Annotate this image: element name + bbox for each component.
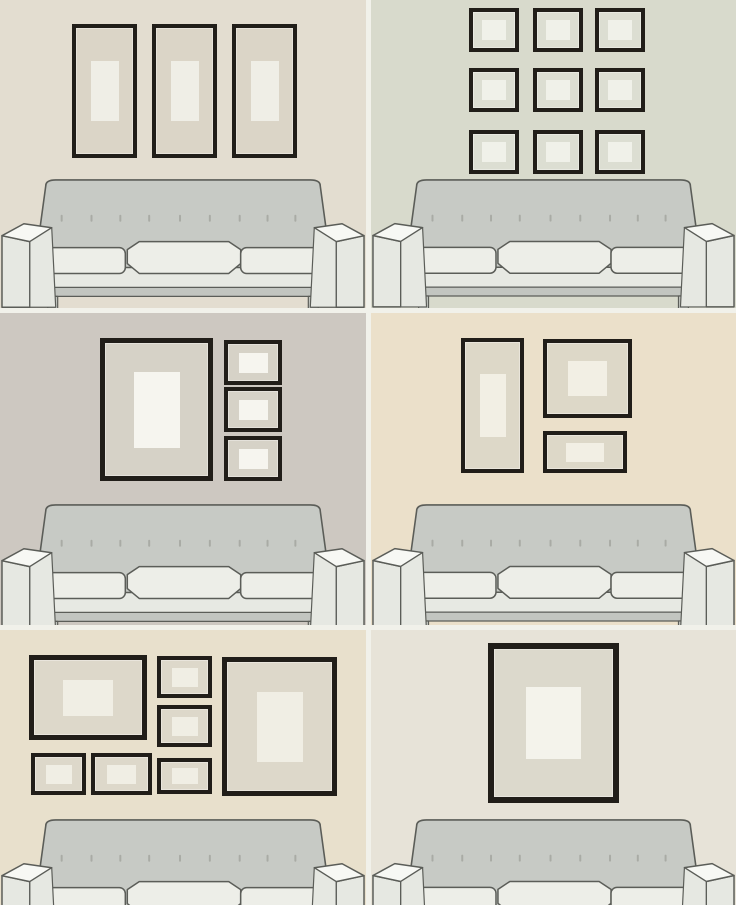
frame-picture-area bbox=[482, 80, 506, 100]
picture-frame bbox=[533, 8, 583, 52]
frame-picture-area bbox=[480, 374, 506, 437]
panel-asymmetric-trio bbox=[371, 313, 736, 625]
picture-frame bbox=[543, 339, 632, 418]
picture-frame bbox=[469, 130, 519, 174]
sofa-illustration bbox=[371, 501, 736, 625]
frame-picture-area bbox=[107, 765, 136, 784]
picture-frame bbox=[469, 8, 519, 52]
picture-frame bbox=[469, 68, 519, 112]
picture-frame bbox=[224, 436, 282, 481]
frame-picture-area bbox=[568, 361, 607, 396]
frame-picture-area bbox=[526, 687, 581, 759]
picture-frame bbox=[232, 24, 297, 158]
panel-nine-square-grid bbox=[371, 0, 736, 308]
frame-picture-area bbox=[134, 372, 180, 448]
picture-frame bbox=[72, 24, 137, 158]
picture-frame bbox=[152, 24, 217, 158]
frame-picture-area bbox=[172, 668, 198, 687]
panel-three-vertical-frames bbox=[0, 0, 366, 308]
frame-picture-area bbox=[239, 400, 268, 420]
picture-frame bbox=[461, 338, 524, 473]
picture-frame bbox=[224, 340, 282, 385]
frame-picture-area bbox=[482, 20, 506, 40]
frame-picture-area bbox=[172, 768, 198, 784]
sofa-illustration bbox=[371, 816, 736, 905]
picture-frame bbox=[222, 657, 337, 796]
panel-gallery-collage bbox=[0, 630, 366, 905]
panel-single-statement-frame bbox=[371, 630, 736, 905]
frame-picture-area bbox=[608, 142, 632, 162]
arrangement-grid bbox=[0, 0, 736, 905]
frame-picture-area bbox=[63, 680, 113, 716]
frame-picture-area bbox=[608, 80, 632, 100]
panel-large-frame-with-three-side-frames bbox=[0, 313, 366, 625]
picture-frame bbox=[31, 753, 86, 795]
picture-frame bbox=[595, 68, 645, 112]
frame-picture-area bbox=[172, 717, 198, 736]
picture-frame bbox=[488, 643, 619, 803]
picture-frame bbox=[29, 655, 147, 740]
picture-frame bbox=[100, 338, 213, 481]
frame-picture-area bbox=[546, 20, 570, 40]
picture-frame bbox=[157, 705, 212, 747]
picture-frame bbox=[157, 758, 212, 794]
picture-frame bbox=[533, 130, 583, 174]
sofa-illustration bbox=[0, 176, 366, 308]
picture-frame bbox=[91, 753, 152, 795]
frame-picture-area bbox=[566, 443, 604, 462]
frame-picture-area bbox=[46, 765, 72, 784]
frame-picture-area bbox=[482, 142, 506, 162]
frame-picture-area bbox=[257, 692, 303, 762]
picture-frame bbox=[224, 387, 282, 432]
picture-frame bbox=[595, 8, 645, 52]
frame-picture-area bbox=[239, 353, 268, 373]
sofa-illustration bbox=[371, 176, 736, 308]
frame-picture-area bbox=[239, 449, 268, 469]
frame-picture-area bbox=[546, 142, 570, 162]
picture-frame bbox=[543, 431, 627, 473]
frame-picture-area bbox=[608, 20, 632, 40]
sofa-illustration bbox=[0, 501, 366, 625]
sofa-illustration bbox=[0, 816, 366, 905]
frame-picture-area bbox=[251, 61, 279, 121]
picture-frame bbox=[533, 68, 583, 112]
picture-frame bbox=[157, 656, 212, 698]
frame-picture-area bbox=[91, 61, 119, 121]
picture-frame bbox=[595, 130, 645, 174]
frame-picture-area bbox=[171, 61, 199, 121]
frame-picture-area bbox=[546, 80, 570, 100]
